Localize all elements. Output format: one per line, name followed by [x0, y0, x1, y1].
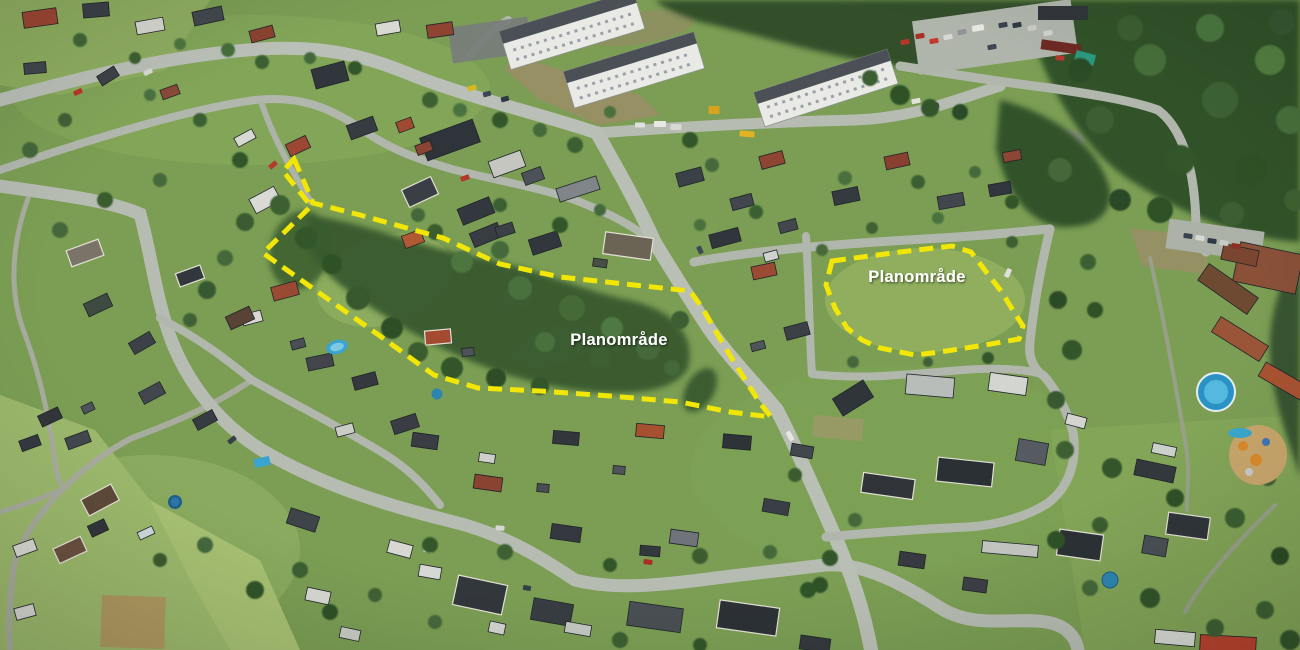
plan-area-label-west: Planområde: [570, 331, 667, 349]
aerial-photograph: Planområde Planområde: [0, 0, 1300, 650]
plan-area-label-east: Planområde: [868, 268, 965, 286]
screenshot-root: Planområde Planområde: [0, 0, 1300, 650]
vignette-overlay: [0, 0, 1300, 650]
